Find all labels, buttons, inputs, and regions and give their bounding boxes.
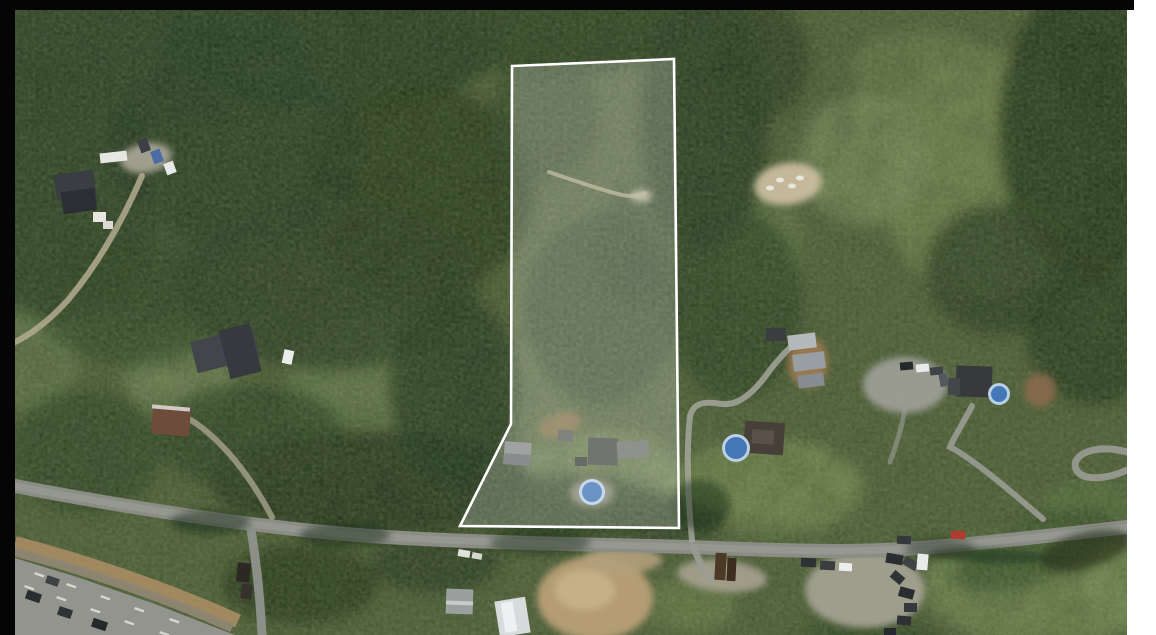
aerial-photo xyxy=(0,0,1156,635)
right-white-panel xyxy=(1127,10,1156,635)
screenshot-stage xyxy=(0,0,1156,635)
top-black-bar xyxy=(0,0,1134,10)
right-white-panel-top xyxy=(1134,0,1156,10)
left-black-bar xyxy=(0,0,15,635)
